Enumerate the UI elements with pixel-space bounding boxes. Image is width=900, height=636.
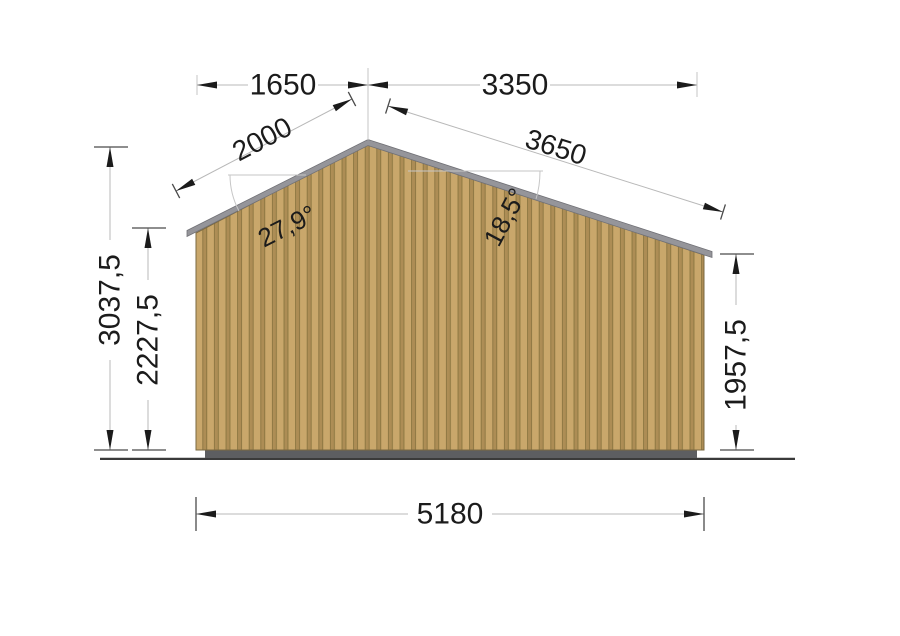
foundation-strip [205, 450, 697, 459]
arrowhead [703, 203, 723, 212]
arrowhead [348, 82, 368, 89]
arrowhead [333, 99, 352, 111]
dim-label-base-width: 5180 [417, 498, 484, 531]
arrowhead [733, 254, 740, 274]
technical-drawing-page: 1650 3350 5180 3037,5 2227,5 1957,5 2000… [0, 0, 900, 636]
dim-label-roof-slope-left: 2000 [227, 111, 297, 167]
arrowhead [107, 430, 114, 450]
dim-label-roof-slope-right: 3650 [522, 123, 591, 171]
arrowhead [677, 82, 697, 89]
arrowhead [368, 82, 388, 89]
arrowhead [197, 82, 217, 89]
dim-label-top-width-left: 1650 [250, 69, 317, 102]
dim-label-top-width-right: 3350 [482, 69, 549, 102]
house-side-elevation-drawing: 1650 3350 5180 3037,5 2227,5 1957,5 2000… [0, 0, 900, 636]
dim-label-total-height: 3037,5 [94, 254, 127, 346]
arrowhead [145, 228, 152, 248]
dim-label-right-wall-height: 1957,5 [720, 319, 753, 411]
arrowhead [176, 179, 195, 191]
arrowhead [733, 430, 740, 450]
arrowhead [684, 511, 704, 518]
arrowhead [388, 106, 408, 115]
arrowhead [145, 430, 152, 450]
arrowhead [196, 511, 216, 518]
dim-label-left-wall-height: 2227,5 [132, 294, 165, 386]
arrowhead [107, 147, 114, 167]
